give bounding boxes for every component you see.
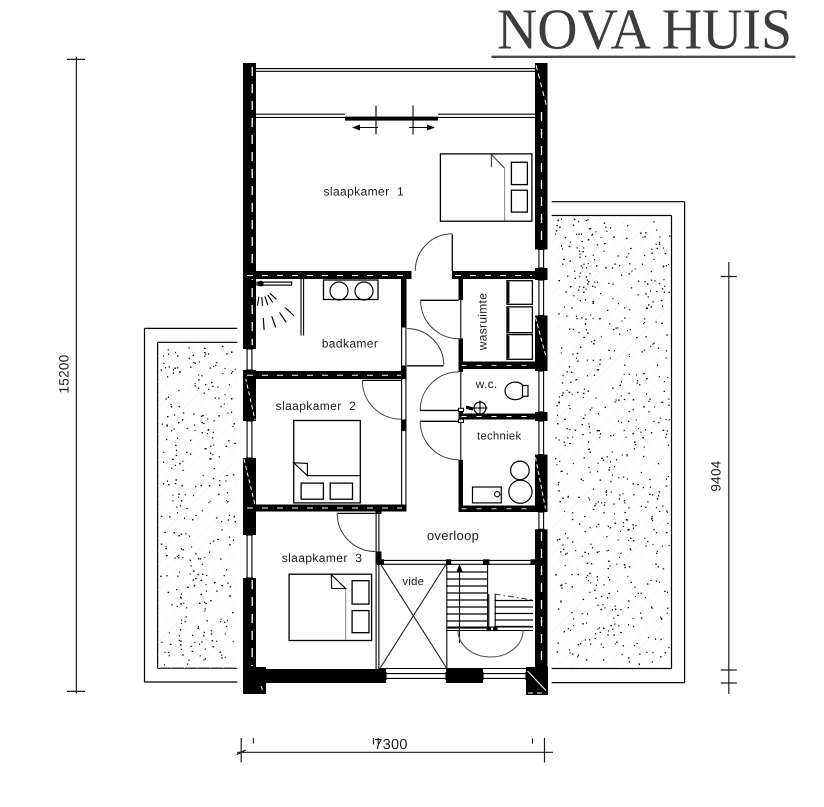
svg-text:badkamer: badkamer bbox=[322, 336, 379, 350]
svg-text:w.c.: w.c. bbox=[475, 377, 498, 391]
svg-text:wasruimte: wasruimte bbox=[476, 293, 490, 351]
svg-text:slaapkamer 2: slaapkamer 2 bbox=[276, 399, 357, 413]
svg-text:vide: vide bbox=[402, 576, 424, 588]
svg-text:slaapkamer 1: slaapkamer 1 bbox=[324, 184, 405, 198]
svg-text:NOVA HUIS: NOVA HUIS bbox=[497, 0, 792, 62]
svg-text:overloop: overloop bbox=[427, 528, 479, 543]
svg-text:9404: 9404 bbox=[708, 460, 723, 491]
svg-text:slaapkamer 3: slaapkamer 3 bbox=[282, 551, 363, 565]
svg-text:7300: 7300 bbox=[374, 737, 407, 753]
svg-text:15200: 15200 bbox=[57, 354, 72, 393]
svg-text:techniek: techniek bbox=[477, 430, 522, 442]
